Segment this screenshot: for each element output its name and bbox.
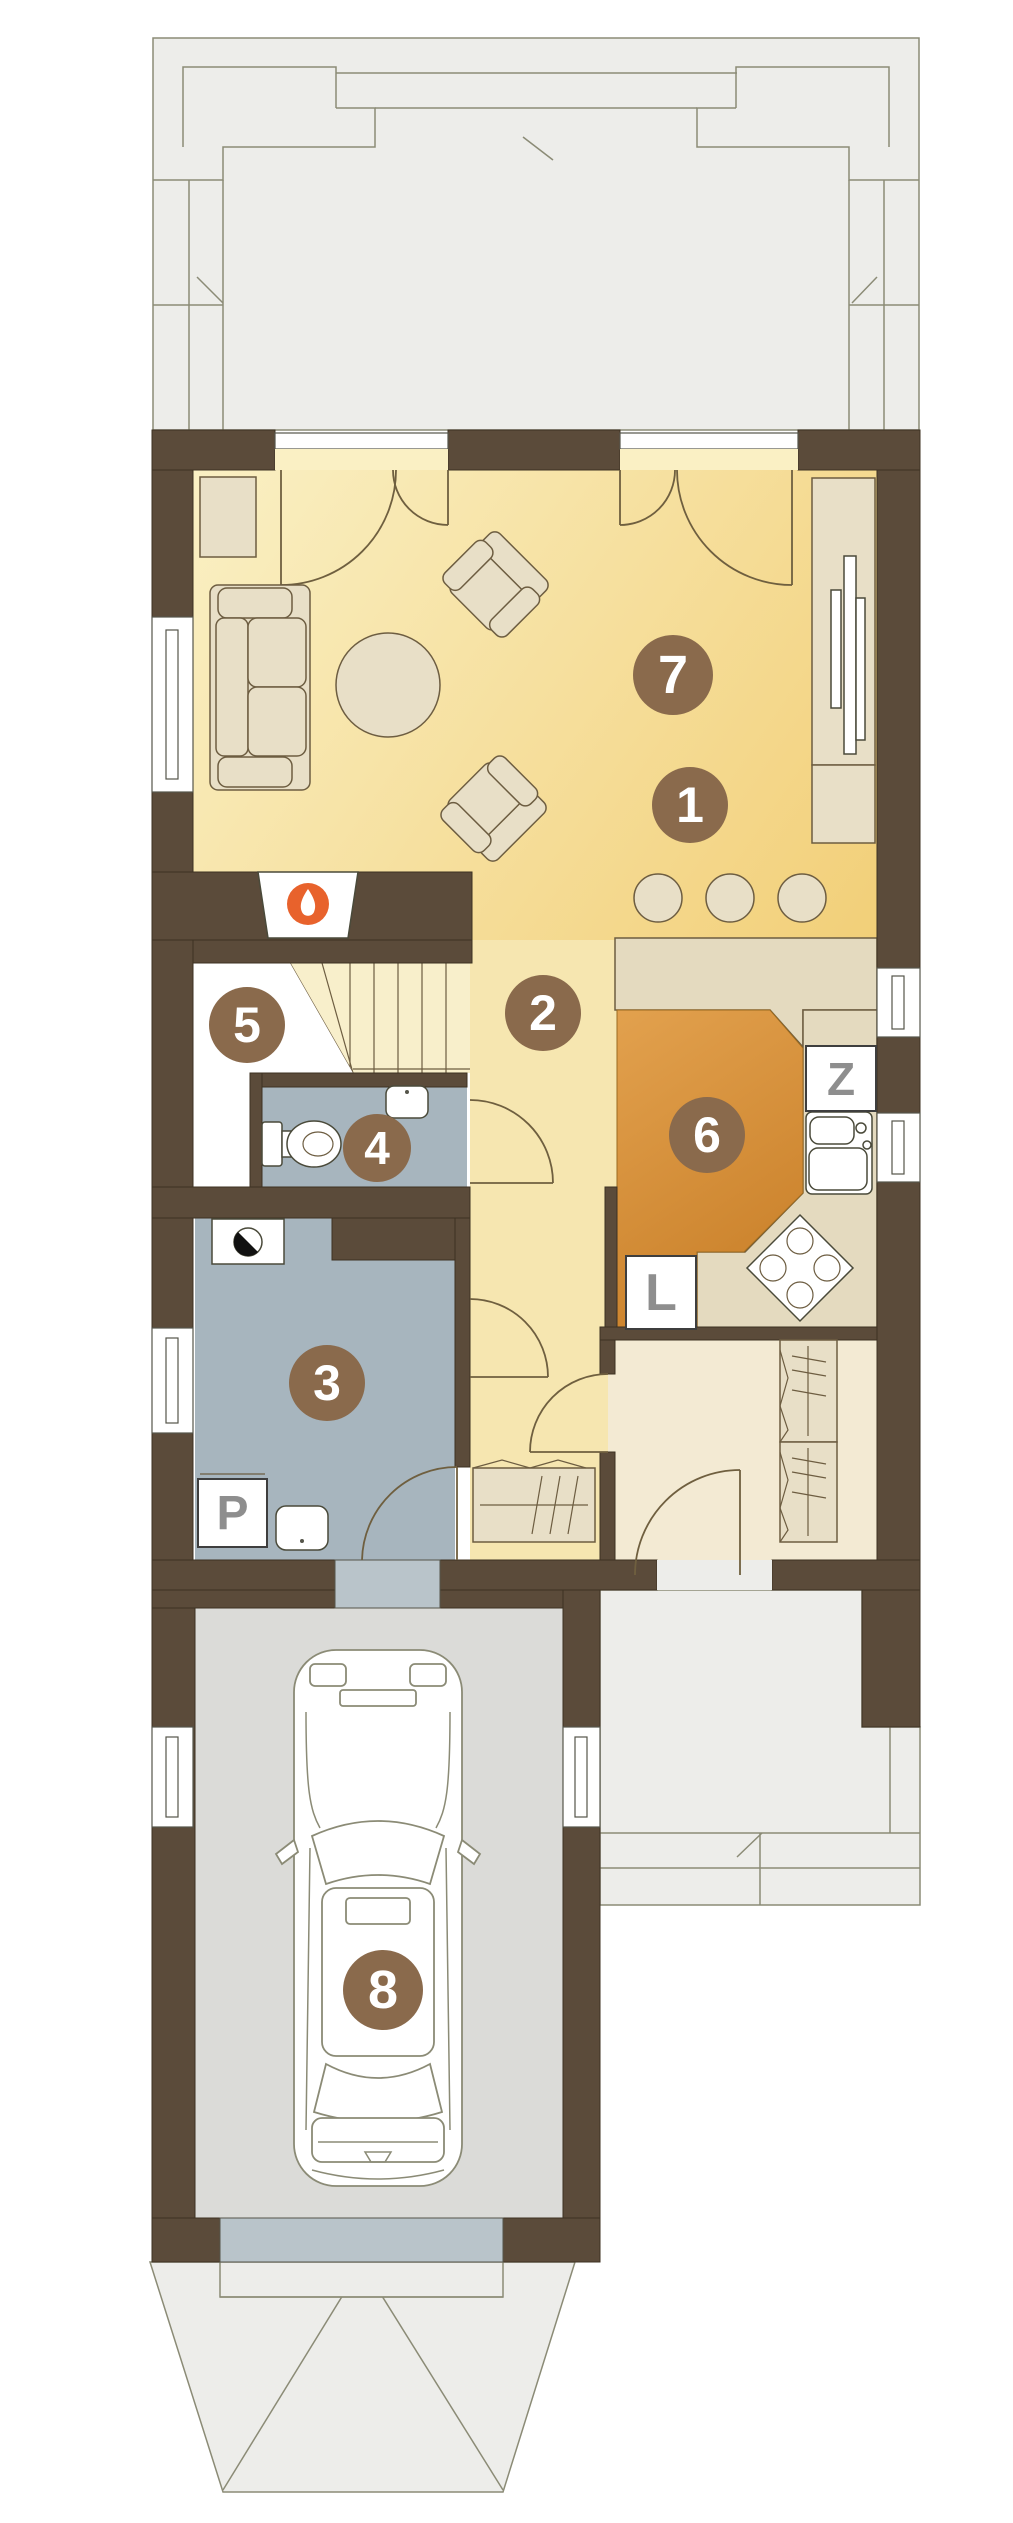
kitchen-sink [806,1112,872,1194]
appliance-label-L-text: L [645,1263,677,1323]
marker-room-3-label: 3 [313,1354,341,1412]
wardrobe-right [780,1340,837,1542]
bar-stools [634,874,826,922]
marker-room-2: 2 [505,975,581,1051]
floor-plan: 1 2 3 4 5 6 7 8 Z L P [0,0,1013,2523]
marker-room-8: 8 [343,1950,423,2030]
window-living [152,617,193,792]
sofa [210,585,310,790]
appliance-label-Z-text: Z [827,1052,855,1106]
appliance-label-L: L [625,1255,697,1330]
marker-room-5: 5 [209,987,285,1063]
marker-room-7-label: 7 [658,644,688,706]
tv-cabinet [812,478,875,843]
toilet [262,1121,341,1167]
car-headlight-left [310,1664,346,1686]
marker-room-6: 6 [669,1097,745,1173]
window-garage-right [563,1727,600,1827]
utility-sink [276,1506,328,1550]
marker-room-4: 4 [343,1114,411,1182]
window-garage-left [152,1727,193,1827]
entrance-pad [657,1560,772,1590]
fireplace [258,872,358,938]
marker-room-4-label: 4 [364,1121,390,1175]
garage-pass-door [335,1560,440,1608]
coffee-table [336,633,440,737]
terrace [153,38,919,430]
marker-room-2-label: 2 [529,984,557,1042]
appliance-label-Z: Z [805,1045,877,1112]
marker-room-3: 3 [289,1345,365,1421]
appliance-label-P: P [197,1478,268,1548]
marker-room-7: 7 [633,635,713,715]
driveway [150,2262,575,2492]
window-utility [152,1328,193,1433]
car-windshield [312,1821,444,1884]
tv-icon [844,556,856,754]
marker-room-6-label: 6 [693,1106,721,1164]
marker-room-1: 1 [652,767,728,843]
marker-room-5-label: 5 [233,996,261,1054]
appliance-label-P-text: P [216,1486,248,1541]
marker-room-1-label: 1 [676,776,704,834]
plan-drawing [0,0,1013,2523]
wardrobe-left [473,1460,595,1542]
side-table [200,477,256,557]
boiler-icon [212,1219,284,1264]
window-kitchen-1 [877,968,920,1037]
car [276,1650,480,2186]
window-kitchen-2 [877,1113,920,1182]
marker-room-8-label: 8 [368,1959,398,2021]
garage-gate [220,2218,503,2262]
car-headlight-right [410,1664,446,1686]
washbasin [386,1086,428,1118]
